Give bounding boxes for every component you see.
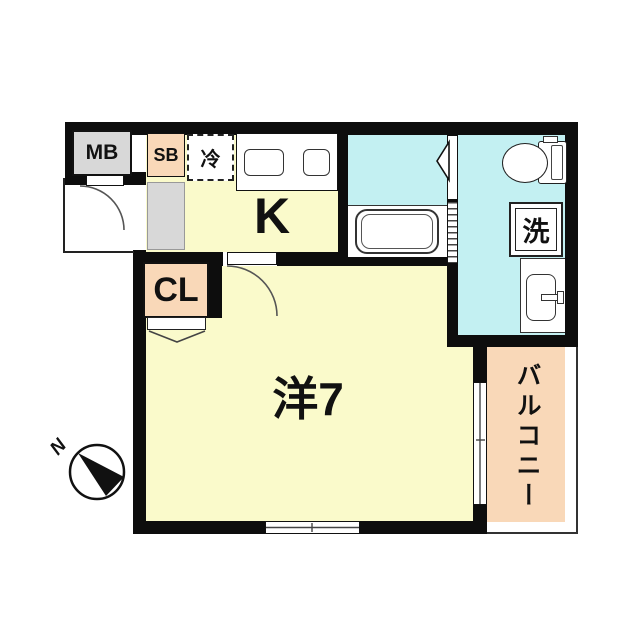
faucet-knob (557, 291, 564, 304)
entrance-step (147, 182, 185, 250)
bathtub-inner (361, 214, 433, 249)
compass-circle (70, 445, 124, 499)
meter-box: MB (72, 130, 132, 176)
washing-machine-inner: 洗 (515, 208, 557, 251)
washing-machine-label: 洗 (523, 210, 550, 249)
entrance-door-arc (80, 186, 124, 230)
toilet-bowl (502, 143, 548, 183)
toilet-tank-inner (551, 145, 563, 180)
meter-box-label: MB (86, 141, 119, 165)
window-south (265, 521, 360, 534)
wall-balcony-left-bottom (473, 505, 487, 534)
shoe-box: SB (147, 133, 185, 177)
closet-label: CL (153, 271, 198, 310)
compass-needle (78, 453, 124, 496)
porch-edge-left (63, 178, 65, 253)
mainroom-door (227, 252, 277, 265)
compass-north-label: N (46, 434, 72, 459)
closet: CL (143, 262, 209, 318)
washroom-sliding-door (447, 202, 458, 263)
balcony-label: バルコニー (509, 352, 545, 522)
compass: N (46, 434, 124, 499)
window-balcony (473, 382, 487, 505)
refrigerator-space: 冷 (187, 134, 234, 181)
wall-balcony-left-top (473, 340, 487, 382)
floor-plan: MB SB 冷 洗 CL K 洋7 バルコニー (0, 0, 640, 640)
wall-washroom-bottom (447, 335, 578, 347)
kitchen-label: K (232, 190, 312, 242)
shoe-box-label: SB (153, 145, 178, 166)
wall-kitchen-bathroom (338, 122, 348, 266)
refrigerator-label: 冷 (201, 143, 221, 172)
washroom-door-panel (447, 136, 458, 200)
toilet-lid (543, 136, 558, 143)
porch-edge-bottom (63, 251, 134, 253)
closet-door (147, 317, 206, 330)
wall-closet-stub (208, 252, 222, 318)
kitchen-burner (303, 149, 330, 176)
main-room-label: 洋7 (216, 368, 400, 424)
kitchen-sink (244, 149, 284, 176)
